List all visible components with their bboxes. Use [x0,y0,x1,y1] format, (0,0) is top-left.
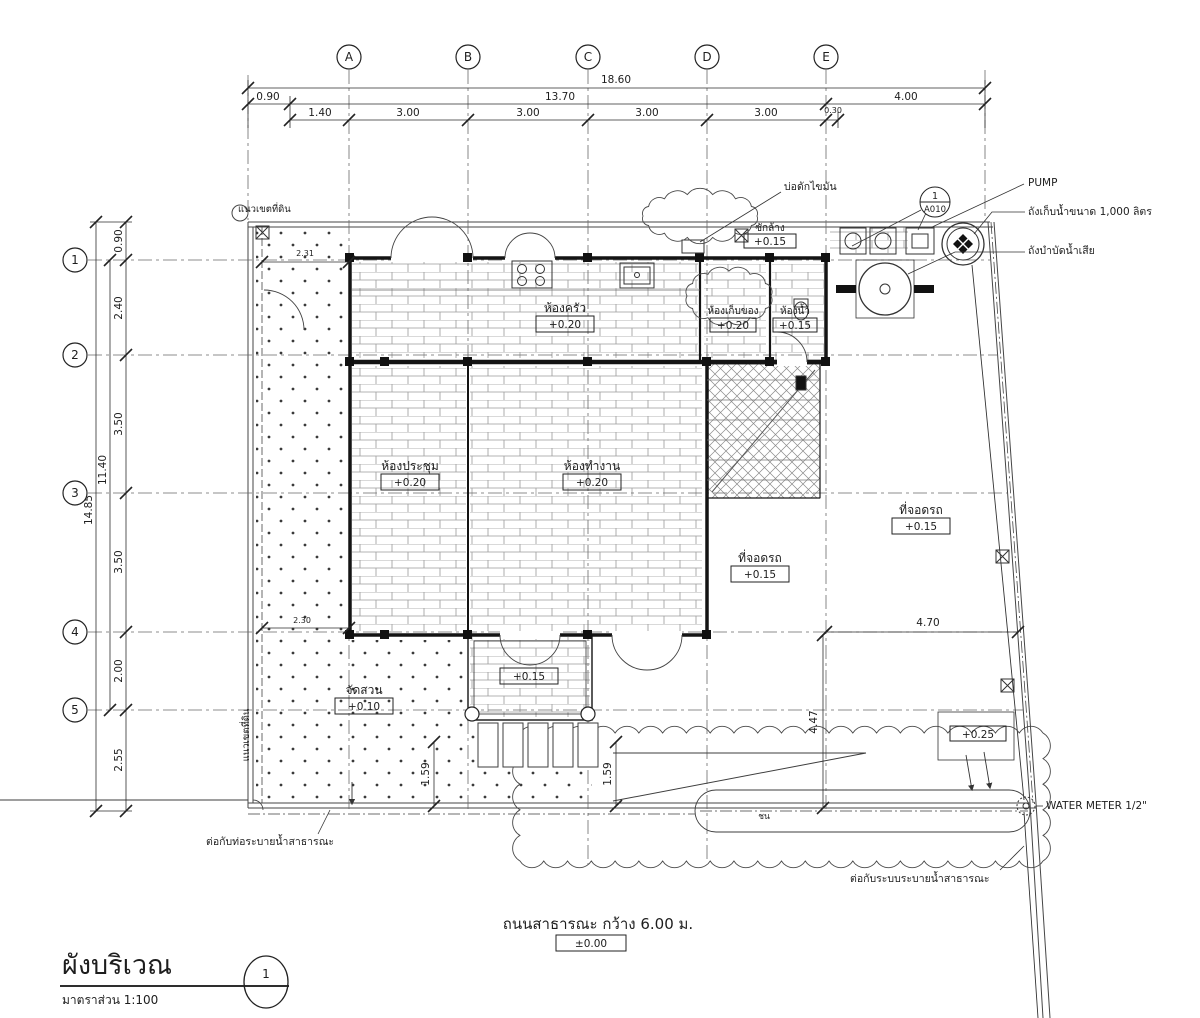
room-storage-level: +0.20 [717,320,749,332]
dim-w-left: 0.90 [256,91,279,103]
note-water-meter: WATER METER 1/2" [1046,800,1147,812]
dim-c1: 3.00 [396,107,419,119]
grid-col-b: B [464,50,472,64]
room-parking1-level: +0.15 [744,569,776,581]
site-plan-sheet: 18.60 0.90 13.70 4.00 1.40 3.00 3.00 3.0… [0,0,1200,1018]
title-block: ผังบริเวณ 1 มาตราส่วน 1:100 [60,950,289,1008]
ramp [613,753,866,801]
room-parking2-level: +0.15 [905,521,937,533]
dim-midleft: 2.30 [293,616,311,625]
dim-h5: 2.55 [113,748,125,771]
side-level: +0.25 [962,729,994,741]
road-level: ±0.00 [575,938,607,950]
grid-col-e: E [822,50,830,64]
dim-park-height: 4.47 [808,710,820,733]
room-bath-name: ห้องน้ำ [780,303,810,317]
note-boundary-left: แนวเขตที่ดิน [239,708,252,761]
room-parking2-name: ที่จอดรถ [899,501,943,517]
room-parking1-name: ที่จอดรถ [738,549,782,565]
note-pump: PUMP [1028,177,1057,189]
note-tank-supply: ถังเก็บน้ำขนาด 1,000 ลิตร [1028,204,1152,218]
dim-walk-left: 1.59 [420,762,432,785]
room-laundry-level: +0.15 [754,236,786,248]
room-office-level: +0.20 [576,477,608,489]
room-meeting-name: ห้องประชุม [381,459,439,474]
room-kitchen-name: ห้องครัว [544,301,586,315]
grid-row-3: 3 [71,486,79,500]
dim-h-span: 11.40 [97,455,109,485]
dim-c3: 3.00 [635,107,658,119]
grid-row-4: 4 [71,625,79,639]
room-kitchen-level: +0.20 [549,319,581,331]
site-plan-drawing: 18.60 0.90 13.70 4.00 1.40 3.00 3.00 3.0… [0,0,1200,1018]
drawing-scale: มาตราส่วน 1:100 [62,993,158,1007]
road-curb-label: ชน [758,812,770,822]
dim-topleft: 2.31 [296,249,314,258]
dim-c5: 0.30 [824,106,842,115]
pump-unit [906,228,934,254]
terrace-level: +0.15 [513,671,545,683]
room-garden-level: +0.10 [348,701,380,713]
room-bath-level: +0.15 [779,320,811,332]
note-grease-trap: บ่อดักไขมัน [784,180,837,193]
dim-walk-right: 1.59 [602,762,614,785]
dim-h1: 2.40 [113,296,125,319]
grid-col-c: C [584,50,592,64]
dim-park-width: 4.70 [916,617,939,629]
room-laundry-name: ซักล้าง [755,222,785,234]
dim-h3: 3.50 [113,550,125,573]
dim-total-width: 18.60 [601,74,631,86]
water-meter-symbol [1017,797,1035,815]
note-boundary-top: แนวเขตที่ดิน [238,202,291,215]
view-number: 1 [262,967,270,981]
note-drain-system: ต่อกับระบบระบายน้ำสาธารณะ [850,871,989,885]
dim-c0: 1.40 [308,107,331,119]
room-garden-name: จัดสวน [345,683,382,697]
callout-sheet: A010 [924,205,946,215]
dim-w-right: 4.00 [894,91,917,103]
room-storage-name: ห้องเก็บของ [707,303,758,317]
grid-row-5: 5 [71,703,79,717]
road-name: ถนนสาธารณะ กว้าง 6.00 ม. [503,915,693,933]
room-meeting-level: +0.20 [394,477,426,489]
grid-row-2: 2 [71,348,79,362]
note-drain-pipe: ต่อกับท่อระบายน้ำสาธารณะ [206,834,334,848]
grid-col-d: D [702,50,711,64]
dim-w-mid: 13.70 [545,91,575,103]
dim-h2: 3.50 [113,412,125,435]
dim-c4: 3.00 [754,107,777,119]
callout-number: 1 [932,191,938,202]
dim-h0: 0.90 [113,229,125,252]
room-office-name: ห้องทำงาน [564,459,620,473]
dim-h4: 2.00 [113,659,125,682]
detail-callout: 1 A010 [920,187,950,217]
drawing-title: ผังบริเวณ [62,950,172,981]
note-tank-waste: ถังบำบัดน้ำเสีย [1028,243,1095,257]
grid-row-1: 1 [71,253,79,267]
grid-col-a: A [345,50,354,64]
stepping-stones [478,723,598,767]
dim-c2: 3.00 [516,107,539,119]
